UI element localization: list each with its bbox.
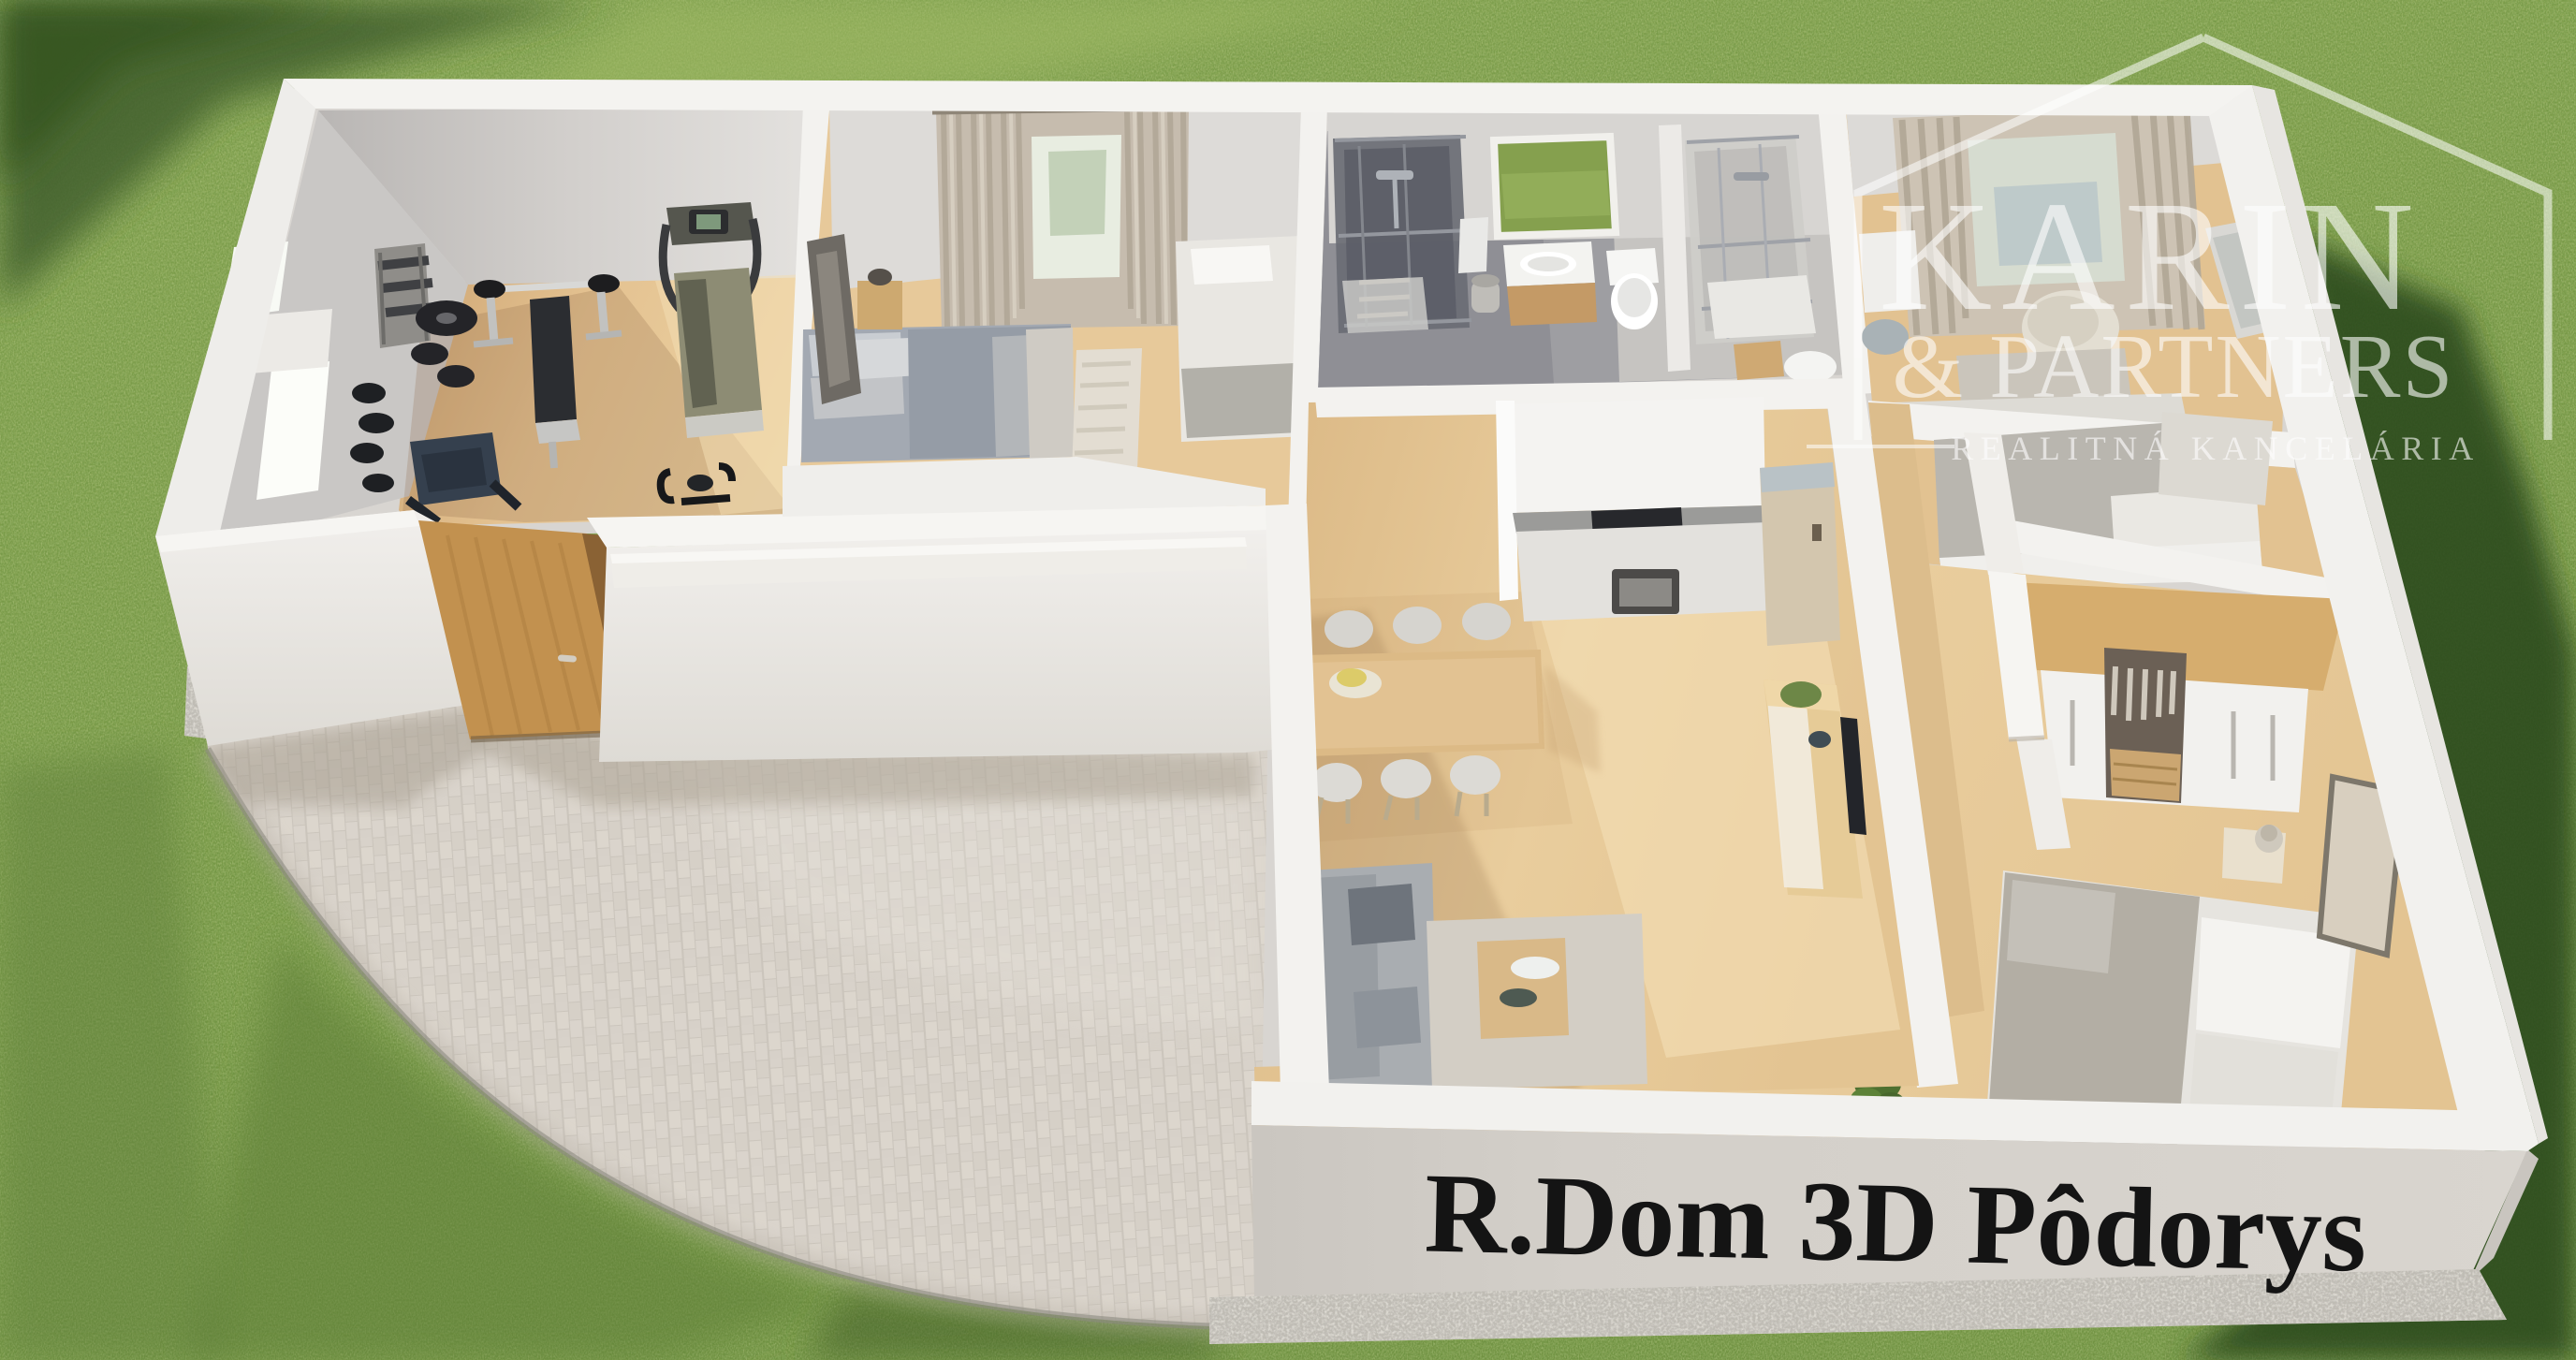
svg-text:& PARTNERS: & PARTNERS [1893, 316, 2455, 417]
svg-text:REALITNÁ KANCELÁRIA: REALITNÁ KANCELÁRIA [1951, 430, 2480, 467]
svg-text:R.Dom 3D Pôdorys: R.Dom 3D Pôdorys [1424, 1149, 2368, 1295]
